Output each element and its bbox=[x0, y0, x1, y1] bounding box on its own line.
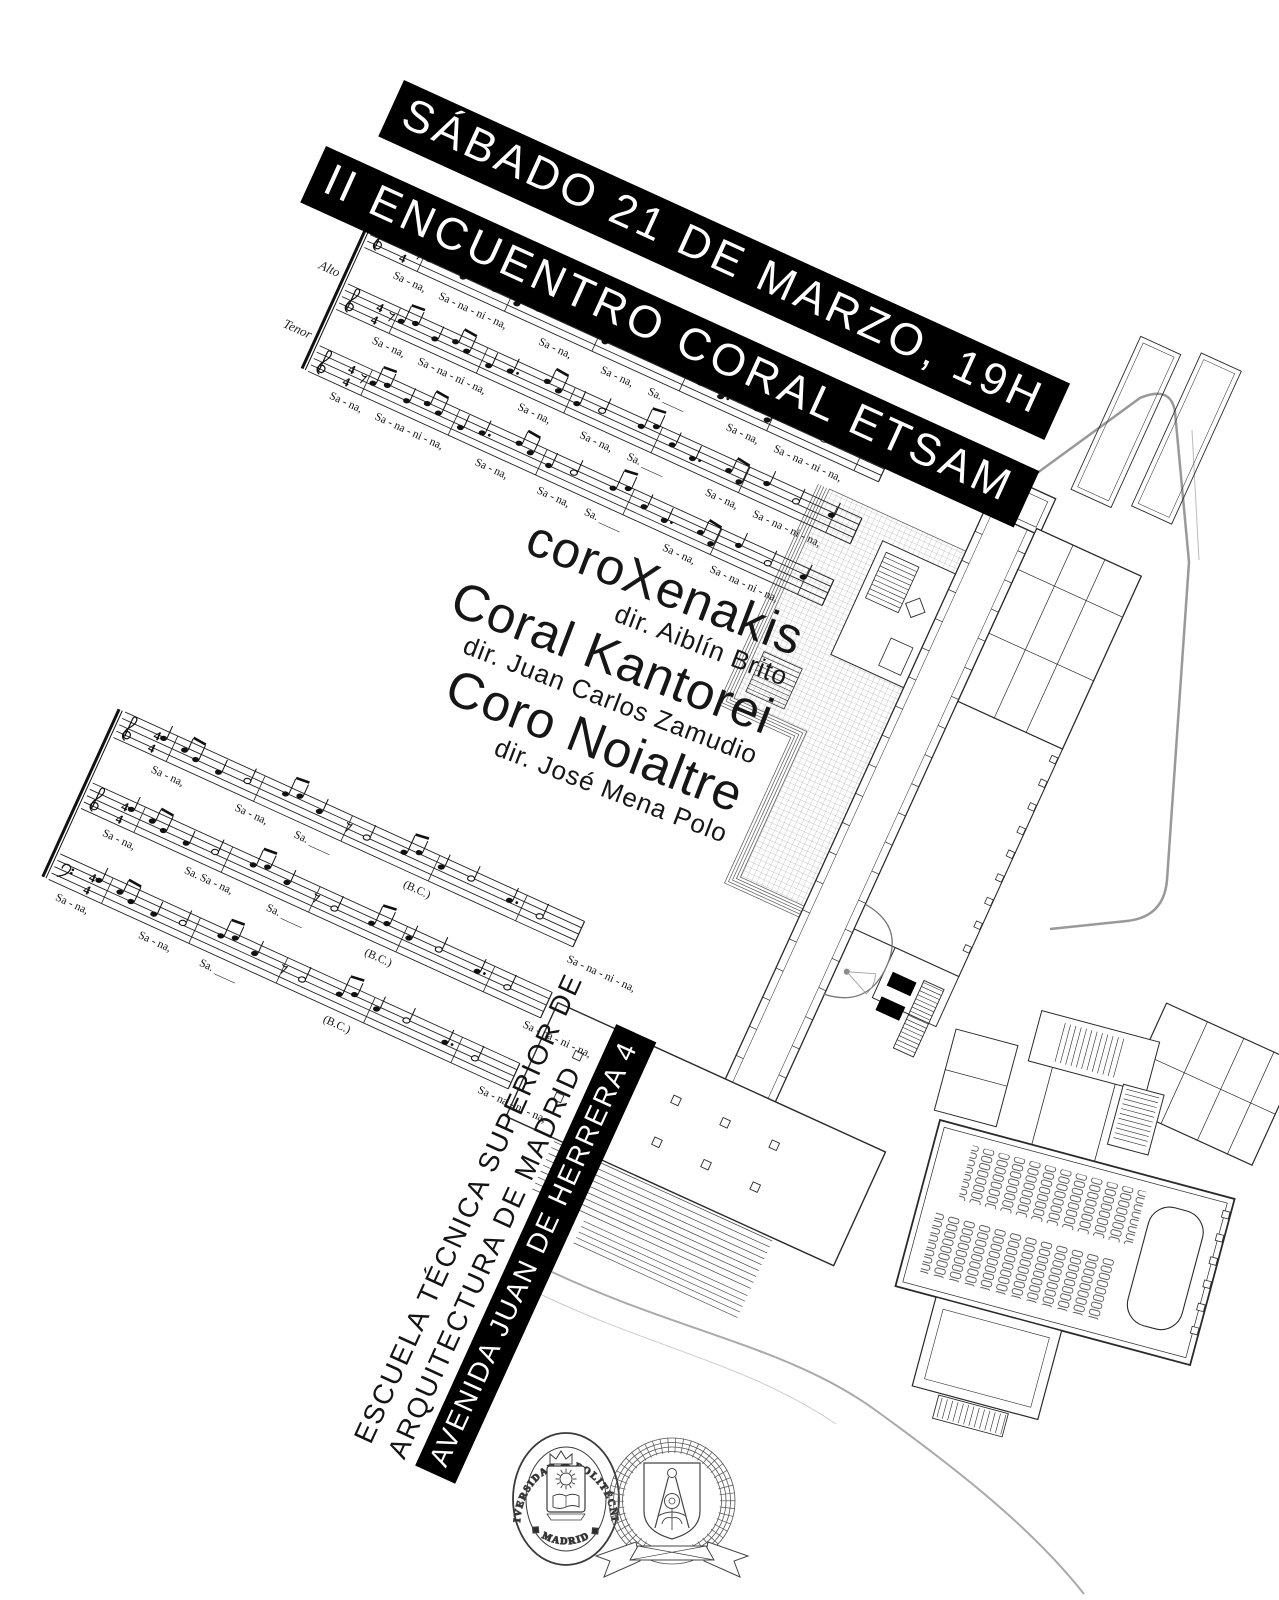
time-signature: 4 bbox=[146, 740, 159, 757]
auditorium-portico bbox=[1028, 1011, 1159, 1093]
time-signature: 4 bbox=[340, 373, 353, 390]
upm-arc-bottom-text: ◆ MADRID ◆ bbox=[528, 1523, 603, 1548]
road-right-inner bbox=[1192, 430, 1199, 560]
lyric-fragment: Sa. ____ bbox=[197, 957, 239, 985]
time-signature: 4 bbox=[81, 882, 94, 899]
plan-pergola bbox=[1132, 353, 1242, 524]
lyric-fragment: Sa. ____ bbox=[625, 451, 667, 479]
lyric-fragment: (B.C.) bbox=[401, 879, 432, 902]
time-signature: 4 bbox=[369, 312, 382, 329]
lyric-fragment: Sa. ____ bbox=[292, 829, 334, 857]
upm-seal-logo: UNIVERSIDAD ◆ POLITÉCNICA ◆ MADRID ◆ bbox=[0, 0, 622, 1565]
poster-root: Soprano Alto Tenor 44Sa - na,Sa - na - n… bbox=[0, 0, 1279, 1600]
lyric-fragment: Sa. ____ bbox=[264, 902, 306, 930]
path-bottom-2 bbox=[540, 1294, 836, 1424]
plan-pergola bbox=[1071, 336, 1181, 507]
auditorium-stair-ne bbox=[1107, 1084, 1164, 1155]
lyric-fragment: (B.C.) bbox=[321, 1014, 352, 1037]
lyric-fragment: Sa. Sa - na, bbox=[182, 865, 234, 898]
staff-label-tenor: Tenor bbox=[281, 316, 315, 342]
time-signature: 4 bbox=[113, 811, 126, 828]
upm-banner-ribbon bbox=[547, 1514, 585, 1520]
lyric-fragment: (B.C.) bbox=[363, 947, 394, 970]
time-signature: 4 bbox=[397, 250, 410, 267]
crown-icon bbox=[550, 1451, 572, 1464]
staff-label-alto: Alto bbox=[316, 257, 343, 280]
lyric-fragment: Sa. ____ bbox=[646, 386, 688, 414]
